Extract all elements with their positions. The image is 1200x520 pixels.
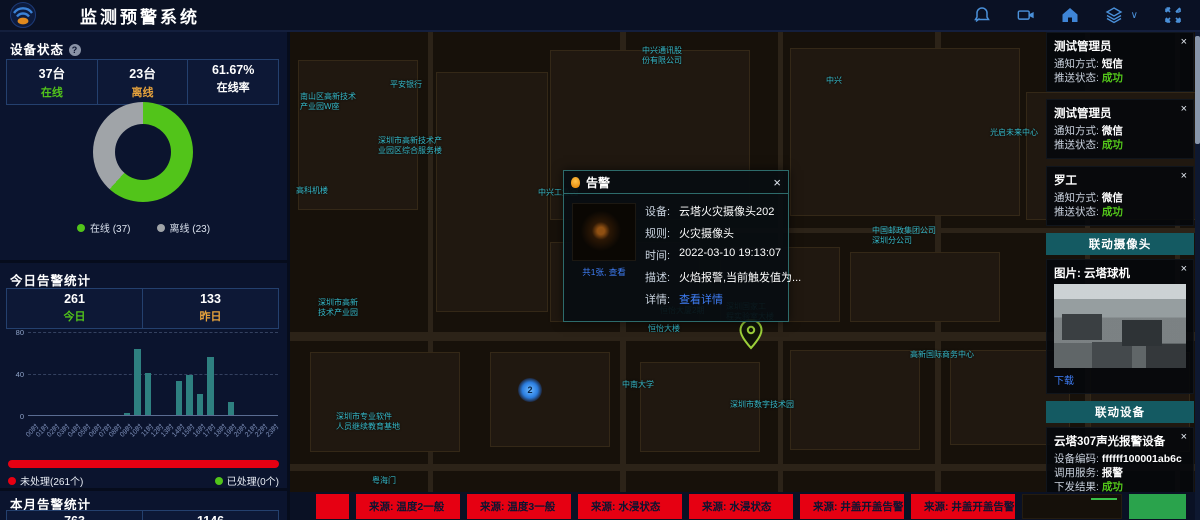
gridline: [28, 374, 278, 375]
chevron-down-icon[interactable]: ∨: [1131, 10, 1138, 21]
stat-value: 133: [143, 292, 278, 306]
stat-value: 61.67%: [188, 63, 278, 77]
card-row: 通知方式: 短信: [1054, 57, 1186, 71]
bar: [124, 413, 131, 415]
map-place-label: 深圳市专业软件 人员继续教育基地: [336, 412, 400, 432]
today-stat-cell: 261今日: [7, 289, 142, 328]
linked-camera-title: 图片: 云塔球机: [1054, 265, 1186, 281]
alert-detail-value: 火焰报警,当前触发值为...: [679, 269, 801, 285]
alert-detail-label: 描述:: [645, 269, 679, 285]
today-alarms-bar-chart: 0408000时01时02时03时04时05时06时07时08时09时10时11…: [4, 326, 283, 472]
alert-detail-value: 云塔火灾摄像头202: [679, 203, 774, 219]
card-row: 通知方式: 微信: [1054, 124, 1186, 138]
camera-thumbnail[interactable]: [1022, 494, 1122, 519]
alarm-progress-legend: 未处理(261个) 已处理(0个): [8, 473, 279, 488]
card-row-value: 微信: [1102, 125, 1123, 137]
stat-label: 在线: [7, 84, 97, 100]
stat-value: 37台: [7, 63, 97, 82]
card-row: 通知方式: 微信: [1054, 191, 1186, 205]
unprocessed-segment: [8, 460, 279, 468]
map-place-label: 粤海门: [372, 476, 396, 486]
home-icon[interactable]: [1061, 6, 1079, 24]
month-stat-cell: 1146: [142, 511, 278, 520]
view-details-link[interactable]: 查看详情: [679, 291, 723, 307]
map-place-label: 光启未来中心: [990, 128, 1038, 138]
notification-card: 测试管理员×通知方式: 短信推送状态: 成功: [1046, 32, 1194, 92]
close-icon[interactable]: ×: [1181, 104, 1187, 115]
stat-label: 今日: [7, 308, 142, 324]
alert-detail-label: 设备:: [645, 203, 679, 219]
linked-device-card: 云塔307声光报警设备×设备编码: ffffff100001ab6c调用服务: …: [1046, 427, 1194, 501]
donut-legend: 在线 (37)离线 (23): [0, 220, 287, 235]
month-stat-cell: 763: [7, 511, 142, 520]
alert-source-label: 来源: 温度3一般: [467, 499, 555, 514]
gridline: [28, 332, 278, 333]
notification-card: 测试管理员×通知方式: 微信推送状态: 成功: [1046, 99, 1194, 159]
bar: [207, 357, 214, 415]
linked-camera-photo[interactable]: [1054, 284, 1186, 368]
alert-source-label: 来源: 水浸状态: [689, 499, 771, 514]
stat-label: 离线: [98, 84, 188, 100]
download-link[interactable]: 下载: [1054, 372, 1186, 387]
close-icon[interactable]: ×: [1181, 171, 1187, 182]
card-row: 调用服务: 报警: [1054, 466, 1186, 480]
app-title: 监测预警系统: [80, 3, 200, 28]
card-row-value: ffffff100001ab6c: [1102, 453, 1182, 465]
map-place-label: 中兴: [826, 76, 842, 86]
legend-dot: [77, 224, 85, 232]
close-icon[interactable]: ×: [1181, 432, 1187, 443]
map-place-label: 高新国际商务中心: [910, 350, 974, 360]
left-sidebar: 设备状态? 37台在线23台离线61.67%在线率 在线 (37)离线 (23)…: [0, 32, 290, 520]
alert-source-label: 来源: 水浸状态: [578, 499, 660, 514]
alert-source-box[interactable]: 来源: 水浸状态: [578, 494, 682, 519]
alert-detail-label: 规则:: [645, 225, 679, 241]
card-row: 设备编码: ffffff100001ab6c: [1054, 452, 1186, 466]
bar: [197, 394, 204, 415]
card-row-value: 成功: [1102, 72, 1123, 84]
linked-device-section-header[interactable]: 联动设备: [1046, 401, 1194, 423]
y-axis-tick: 0: [6, 412, 24, 421]
device-stat-cell: 37台在线: [7, 60, 97, 104]
month-alarms-stats: 7631146: [6, 510, 279, 520]
device-status-title: 设备状态?: [10, 39, 81, 58]
card-title: 测试管理员: [1054, 105, 1186, 121]
legend-label: 在线 (37): [90, 220, 131, 235]
alert-detail-row: 详情:查看详情: [645, 291, 801, 307]
fullscreen-icon[interactable]: [1164, 6, 1182, 24]
green-thumbnail[interactable]: [1129, 494, 1186, 519]
alert-source-label: 来源: 温度2一般: [356, 499, 444, 514]
video-camera-icon[interactable]: [1017, 6, 1035, 24]
card-row-value: 报警: [1102, 467, 1123, 479]
alert-detail-value: 2022-03-10 19:13:07: [679, 247, 781, 263]
map-place-label: 恒怡大楼: [648, 324, 680, 334]
notification-card: 罗工×通知方式: 微信推送状态: 成功: [1046, 166, 1194, 226]
card-row-value: 成功: [1102, 206, 1123, 218]
today-stat-cell: 133昨日: [142, 289, 278, 328]
map-pin-icon[interactable]: [738, 318, 764, 355]
app-logo-icon: [10, 2, 36, 28]
unprocessed-label: 未处理(261个): [20, 473, 83, 488]
card-row-value: 短信: [1102, 58, 1123, 70]
bar: [176, 381, 183, 415]
card-row-value: 微信: [1102, 192, 1123, 204]
bottom-alert-strip: 来源: 温度2一般来源: 温度3一般来源: 水浸状态来源: 水浸状态来源: 井盖…: [290, 492, 1200, 520]
legend-item: 在线 (37): [77, 220, 131, 235]
alert-source-box[interactable]: 来源: 温度3一般: [467, 494, 571, 519]
scrollbar-thumb[interactable]: [1195, 36, 1200, 144]
alert-popup: 告警 × 共1张, 查看 设备:云塔火灾摄像头202规则:火灾摄像头时间:202…: [563, 170, 789, 322]
today-alarms-stats: 261今日133昨日: [6, 288, 279, 329]
layers-icon[interactable]: [1105, 6, 1123, 24]
alert-detail-label: 详情:: [645, 291, 679, 307]
map-place-label: 中国邮政集团公司 深圳分公司: [872, 226, 936, 246]
stat-value: 763: [7, 514, 142, 520]
bar: [145, 373, 152, 415]
stat-value: 23台: [98, 63, 188, 82]
bell-off-icon[interactable]: [973, 6, 991, 24]
map-place-label: 深圳市高新 技术产业园: [318, 298, 358, 318]
legend-item: 离线 (23): [157, 220, 211, 235]
device-stat-cell: 61.67%在线率: [187, 60, 278, 104]
alarm-lamp-icon: [571, 177, 580, 188]
map-place-label: 高科机楼: [296, 186, 328, 196]
map-place-label: 深圳市高新技术产 业园区综合服务楼: [378, 136, 442, 156]
device-status-donut-chart: [93, 102, 193, 202]
y-axis-tick: 80: [6, 328, 24, 337]
alert-source-box[interactable]: 来源: 温度2一般: [356, 494, 460, 519]
card-title: 测试管理员: [1054, 38, 1186, 54]
y-axis-tick: 40: [6, 370, 24, 379]
stat-label: 在线率: [188, 79, 278, 95]
map-place-label: 平安银行: [390, 80, 422, 90]
alert-source-box[interactable]: 来源: 水浸状态: [689, 494, 793, 519]
alert-detail-row: 设备:云塔火灾摄像头202: [645, 203, 801, 219]
map-place-label: 中南大学: [622, 380, 654, 390]
card-title: 云塔307声光报警设备: [1054, 433, 1186, 449]
alert-detail-row: 时间:2022-03-10 19:13:07: [645, 247, 801, 263]
top-header: 监测预警系统 ∨: [0, 0, 1200, 32]
alert-detail-label: 时间:: [645, 247, 679, 263]
alert-source-label: 来源: 井盖开盖告警: [800, 499, 903, 514]
bar: [228, 402, 235, 415]
bar: [186, 375, 193, 415]
linked-camera-section-header[interactable]: 联动摄像头: [1046, 233, 1194, 255]
alert-popup-title: 告警: [586, 174, 773, 191]
device-stat-cell: 23台离线: [97, 60, 188, 104]
card-row-value: 成功: [1102, 139, 1123, 151]
alert-source-box[interactable]: 来源: 井盖开盖告警: [800, 494, 904, 519]
card-title: 罗工: [1054, 172, 1186, 188]
alert-image-caption-link[interactable]: 共1张, 查看: [572, 266, 636, 278]
legend-label: 离线 (23): [170, 220, 211, 235]
scrollbar-track[interactable]: [1195, 32, 1200, 520]
alert-detail-value: 火灾摄像头: [679, 225, 734, 241]
bar: [134, 349, 141, 415]
alert-source-box[interactable]: [316, 494, 349, 519]
map-place-label: 南山区高新技术 产业园W座: [300, 92, 356, 112]
stat-value: 1146: [143, 514, 278, 520]
map-cluster-marker[interactable]: 2: [518, 378, 542, 402]
stat-label: 昨日: [143, 308, 278, 324]
close-icon[interactable]: ×: [1181, 37, 1187, 48]
processed-label: 已处理(0个): [227, 473, 279, 488]
alert-detail-row: 描述:火焰报警,当前触发值为...: [645, 269, 801, 285]
map-place-label: 中兴通讯股 份有限公司: [642, 46, 682, 66]
card-row: 推送状态: 成功: [1054, 71, 1186, 85]
close-icon[interactable]: ×: [1181, 264, 1187, 275]
alert-source-label: 来源: 井盖开盖告警: [911, 499, 1014, 514]
right-sidebar: 测试管理员×通知方式: 短信推送状态: 成功测试管理员×通知方式: 微信推送状态…: [1046, 32, 1194, 520]
alarm-progress-bar: [8, 460, 279, 468]
map-place-label: 深圳市数字技术园: [730, 400, 794, 410]
help-icon[interactable]: ?: [69, 44, 81, 56]
legend-dot: [157, 224, 165, 232]
stat-value: 261: [7, 292, 142, 306]
alert-detail-row: 规则:火灾摄像头: [645, 225, 801, 241]
alert-snapshot-image[interactable]: [572, 203, 636, 261]
close-icon[interactable]: ×: [773, 176, 781, 189]
linked-camera-card: 图片: 云塔球机 × 下载: [1046, 259, 1194, 394]
card-row: 推送状态: 成功: [1054, 138, 1186, 152]
alert-source-box[interactable]: 来源: 井盖开盖告警: [911, 494, 1015, 519]
today-alarms-title: 今日告警统计: [10, 270, 91, 289]
card-row: 推送状态: 成功: [1054, 205, 1186, 219]
device-status-stats: 37台在线23台离线61.67%在线率: [6, 59, 279, 105]
